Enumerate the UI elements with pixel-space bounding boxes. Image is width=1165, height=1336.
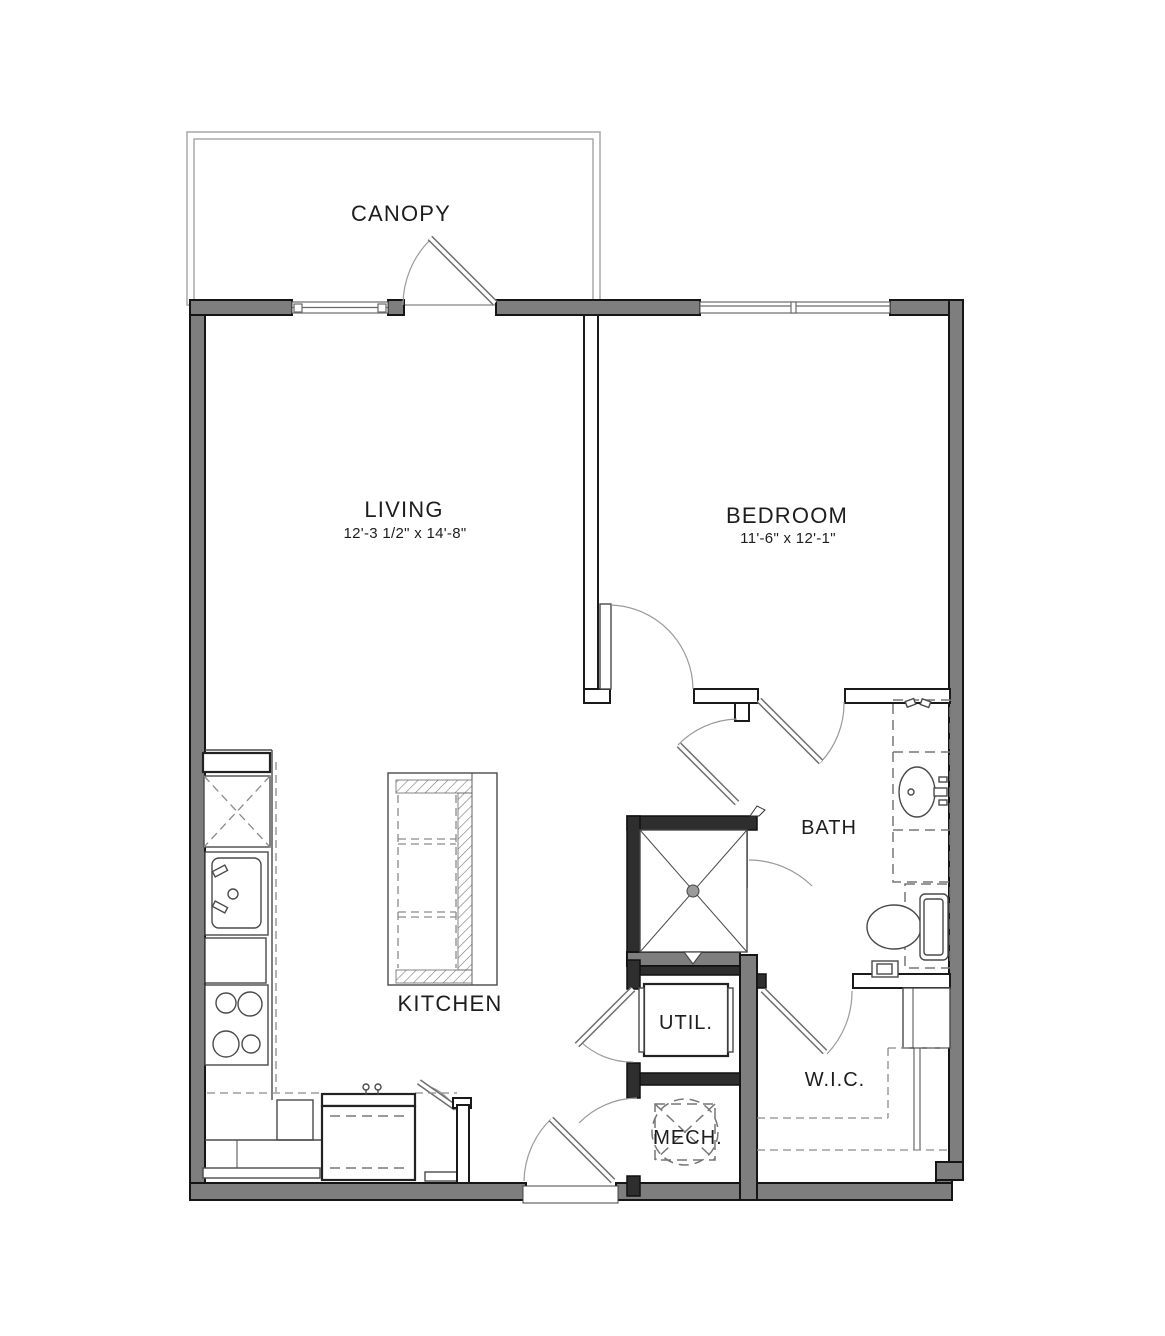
wall-bottom-2 (616, 1183, 952, 1200)
door-stop-hook (750, 806, 765, 816)
util-wall-top (637, 966, 740, 975)
kitchen-label: KITCHEN (398, 991, 503, 1016)
bedroom-dimensions: 11'-6" x 12'-1" (740, 530, 836, 547)
mech-label: MECH. (653, 1127, 722, 1149)
return-wall-stub (453, 1098, 471, 1183)
living-dimensions: 12'-3 1/2" x 14'-8" (344, 525, 467, 542)
wall-bedroom-stub (584, 689, 610, 703)
living-window (292, 302, 388, 313)
toilet-paper-holder-icon (872, 961, 898, 977)
wall-top-pier (388, 300, 404, 315)
core-wall-mid (627, 952, 740, 966)
range-burners-icon (205, 985, 268, 1065)
wic-label: W.I.C. (805, 1069, 865, 1091)
core-wall-right (740, 955, 757, 1200)
doors (403, 238, 852, 1203)
shower-icon (640, 830, 747, 964)
util-label: UTIL. (659, 1012, 713, 1034)
wall-bedroom-bath-1 (694, 689, 758, 703)
bedroom-door (600, 604, 693, 689)
toilet-icon (867, 884, 950, 968)
floor-plan-drawing: CANOPY (0, 0, 1165, 1336)
wall-right-step (936, 1162, 963, 1180)
shower-door (743, 831, 812, 948)
kitchen-sink-icon (205, 852, 268, 935)
mech-door (579, 1098, 637, 1123)
core-stub-1 (627, 960, 640, 989)
entry-door (403, 238, 495, 305)
counter-end-cap (203, 753, 270, 772)
bath-label: BATH (801, 817, 857, 839)
shower-wall-left (627, 816, 640, 957)
wall-top-1 (190, 300, 292, 315)
kitchen-area: KITCHEN (203, 750, 502, 1183)
wall-right (949, 300, 963, 1162)
vanity-sink-icon (893, 698, 950, 882)
refrigerator-icon (204, 776, 270, 847)
wall-bedroom-bath-2 (845, 689, 950, 703)
wic-door (763, 990, 852, 1054)
wall-living-bedroom (584, 315, 598, 689)
wall-bath-wic (853, 974, 950, 988)
core-stub-3 (627, 1176, 640, 1196)
kitchen-corner-door (417, 1082, 456, 1110)
bedroom-window (700, 302, 890, 313)
shower-drain-icon (687, 885, 699, 897)
mechanical-closet: MECH. (652, 1099, 723, 1165)
canopy-area: CANOPY (187, 132, 600, 305)
wall-top-2 (496, 300, 700, 315)
exterior-walls (190, 300, 963, 1200)
bath-door-lower (678, 719, 737, 803)
bath-area: BATH (801, 698, 950, 977)
util-mech-divider (637, 1073, 740, 1085)
dishwasher-icon (205, 938, 266, 983)
wall-bottom-1 (190, 1183, 526, 1200)
door-threshold (523, 1186, 618, 1203)
util-door (577, 989, 633, 1062)
floor-plan-page: CANOPY (0, 0, 1165, 1336)
bath-door-upper (759, 700, 844, 763)
core-stub-2 (627, 1063, 640, 1098)
canopy-label: CANOPY (351, 201, 451, 226)
bedroom-label: BEDROOM (726, 503, 848, 528)
shower-wall-top (627, 816, 757, 830)
kitchen-island-icon (388, 773, 497, 985)
interior-walls (584, 315, 950, 1200)
bottom-entry-door (523, 1119, 618, 1203)
wall-left (190, 300, 205, 1200)
bottom-sink-icon (322, 1084, 415, 1180)
utility-closet: UTIL. (639, 984, 733, 1056)
wall-hall-stub (735, 703, 749, 721)
living-label: LIVING (364, 497, 443, 522)
